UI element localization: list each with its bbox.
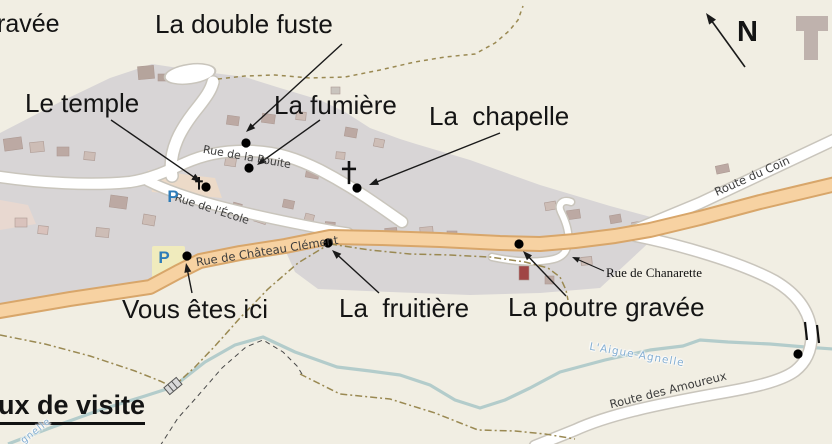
dot-route-bend xyxy=(793,349,802,358)
dot-la-chapelle xyxy=(352,183,361,192)
dot-la-fruitiere xyxy=(323,238,332,247)
dot-vous-etes-ici xyxy=(182,251,191,260)
dot-le-temple xyxy=(201,182,210,191)
map: ravéeLa double fusteLe templeLa fumièreL… xyxy=(0,0,832,444)
dot-la-fumiere xyxy=(244,163,253,172)
dot-la-double-fuste xyxy=(241,138,250,147)
map-canvas xyxy=(0,0,832,444)
dot-la-poutre-gravee xyxy=(514,239,523,248)
